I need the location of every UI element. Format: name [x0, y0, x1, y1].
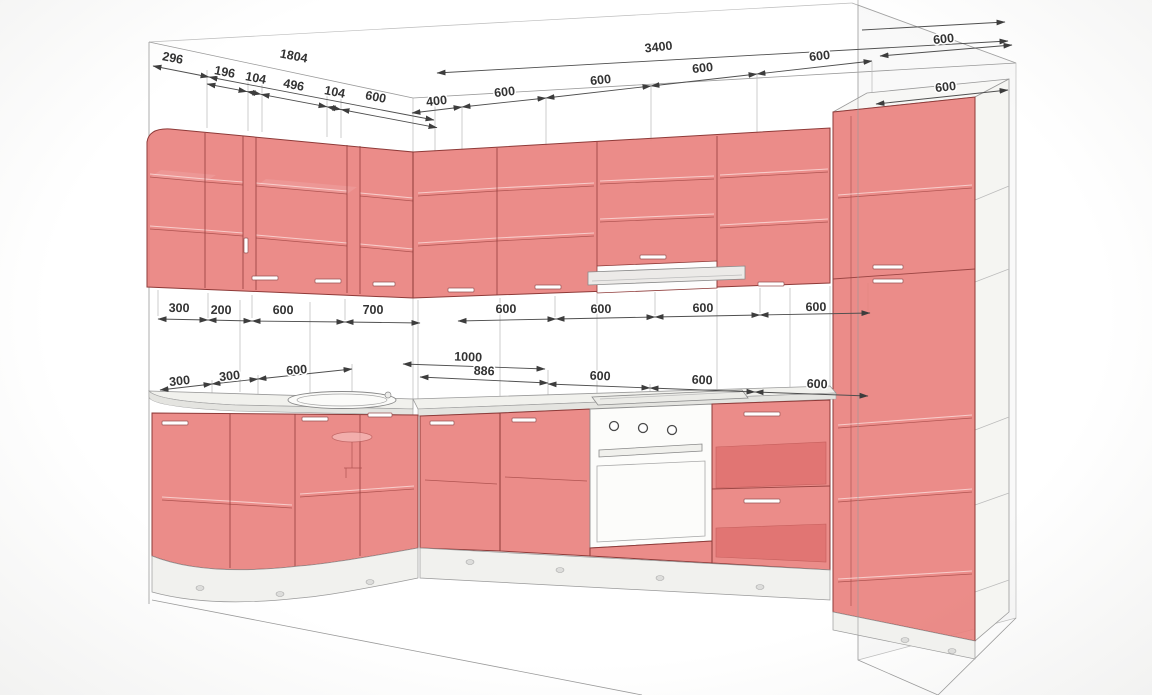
dim-600-wall-left: 600 — [273, 303, 294, 317]
door-handle — [162, 421, 188, 425]
dim-600-wall-back-4: 600 — [805, 300, 826, 314]
dim-600-base-left: 600 — [286, 362, 308, 378]
dim-1804: 1804 — [279, 47, 309, 66]
dim-600-wall-back-3: 600 — [692, 301, 713, 315]
dim-296: 296 — [161, 49, 184, 67]
dim-600-base-back-1: 600 — [589, 369, 610, 384]
door-handle — [535, 285, 561, 289]
door-handle — [512, 418, 536, 422]
dim-600-ceiling-back-2: 600 — [589, 72, 611, 88]
kitchen-drawing-canvas: 296 1804 196 104 496 104 600 3400 400 60… — [0, 0, 1152, 695]
sink-bowl — [332, 432, 372, 442]
dim-600-right-lower: 600 — [934, 79, 956, 95]
dim-600-right-top: 600 — [932, 31, 954, 47]
dim-400: 400 — [425, 93, 447, 109]
door-handle — [302, 417, 328, 421]
dim-600-base-back-2: 600 — [691, 373, 712, 388]
door-handle — [640, 255, 666, 259]
door-handle — [315, 279, 341, 283]
door-handle — [244, 238, 248, 253]
faucet — [385, 392, 391, 398]
door-handle — [252, 276, 278, 280]
door-handle — [368, 413, 392, 417]
base-cabinets-back — [420, 400, 830, 600]
dim-200-wall-left: 200 — [211, 303, 232, 317]
dim-700-wall-left: 700 — [363, 303, 384, 317]
dim-300-wall-left: 300 — [169, 301, 190, 315]
dim-300-base-1: 300 — [168, 373, 190, 389]
dim-600-ceiling-back-4: 600 — [808, 48, 830, 64]
dim-3400: 3400 — [644, 39, 673, 56]
dim-300-base-2: 300 — [218, 368, 240, 384]
tall-cabinet — [833, 79, 1009, 659]
door-handle — [448, 288, 474, 292]
wall-cabinets-back — [413, 128, 830, 298]
dim-600-ceiling-back-3: 600 — [691, 60, 713, 76]
wall-cabinets-left — [147, 129, 413, 298]
door-handle — [373, 282, 395, 286]
kitchen-3d-drawing: 296 1804 196 104 496 104 600 3400 400 60… — [0, 0, 1152, 695]
dim-600-ceiling-left: 600 — [364, 88, 387, 106]
oven — [590, 404, 712, 563]
dim-1000: 1000 — [454, 350, 482, 365]
dim-600-wall-back-1: 600 — [495, 302, 516, 316]
door-handle — [430, 421, 454, 425]
door-handle — [873, 279, 903, 283]
oven-knob — [639, 424, 648, 433]
drawer-handle — [744, 412, 780, 416]
dim-600-base-back-3: 600 — [806, 377, 827, 392]
dim-886: 886 — [473, 364, 494, 379]
drawer-unit — [712, 400, 830, 570]
dim-600-wall-back-2: 600 — [590, 302, 611, 316]
door-handle — [758, 282, 784, 286]
oven-knob — [668, 426, 677, 435]
base-cabinets-left — [152, 413, 418, 602]
drawer-handle — [744, 499, 780, 503]
oven-knob — [610, 422, 619, 431]
door-handle — [873, 265, 903, 269]
dim-600-ceiling-back-1: 600 — [493, 84, 515, 100]
